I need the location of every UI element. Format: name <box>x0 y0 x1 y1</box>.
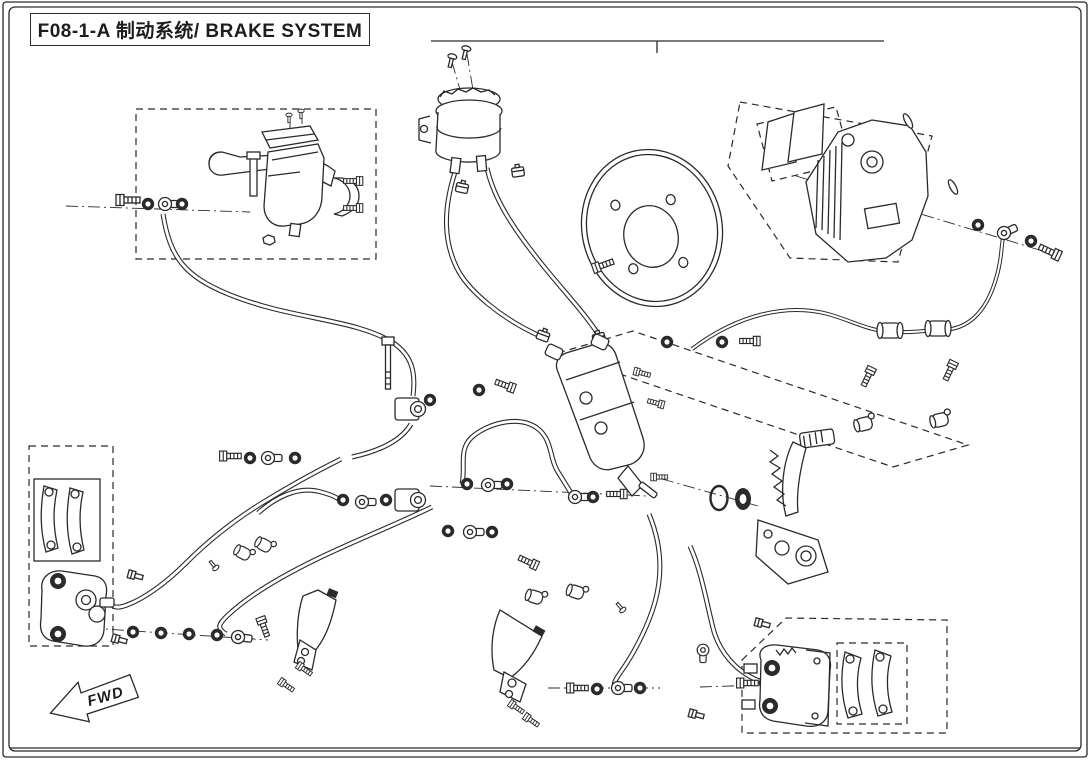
bolt-21 <box>859 365 876 387</box>
rear-banjo-fitting <box>972 219 1063 261</box>
bleeder-33 <box>127 570 144 582</box>
page-frame <box>3 2 1087 757</box>
hose-clamps-left <box>207 534 277 572</box>
clamp-22 <box>565 581 590 601</box>
caliper-pin-17 <box>947 179 960 196</box>
lever-pivot-bolt <box>250 158 257 196</box>
banjo-bolt-4 <box>1037 242 1062 261</box>
rear-right-caliper <box>742 645 892 726</box>
hose-20-front <box>112 459 341 607</box>
clamp-22 <box>524 586 549 606</box>
bolt-21 <box>522 712 540 728</box>
bleeder-33 <box>111 634 128 646</box>
reservoir-screw <box>445 53 457 68</box>
bleeder-33 <box>754 618 771 630</box>
pipe-clamps-right <box>852 359 958 432</box>
clamp-22 <box>253 534 277 556</box>
bolt-21 <box>941 359 958 381</box>
brake-pedal <box>651 429 835 584</box>
fitting-36 <box>697 644 709 662</box>
front-master-cylinder <box>209 109 363 245</box>
hose-clamp-9 <box>511 164 525 178</box>
parts-diagram-page: FWD F08-1-A 制动系统/ BRAKE SYSTEM <box>0 0 1090 760</box>
diagram-canvas: FWD <box>0 0 1090 760</box>
top-index-bracket <box>431 41 884 53</box>
bleeder-33 <box>688 709 705 721</box>
brake-pad <box>788 104 824 162</box>
hose-10 <box>446 172 540 336</box>
title-block: F08-1-A 制动系统/ BRAKE SYSTEM <box>30 13 370 46</box>
fwd-arrow: FWD <box>44 667 141 731</box>
clamp-22 <box>232 542 256 564</box>
front-left-caliper <box>41 486 115 646</box>
clamp-22 <box>852 412 877 432</box>
hose-clamp-9 <box>455 179 469 193</box>
hose-guard-39 <box>492 610 545 728</box>
pipe-sleeves <box>877 321 951 339</box>
brake-disc <box>565 134 739 321</box>
bottom-middle-fasteners <box>524 581 800 721</box>
left-caliper-fasteners <box>127 616 272 646</box>
clamp-32-lower <box>395 489 426 511</box>
washer-27 <box>711 486 728 510</box>
screw-37 <box>614 601 627 614</box>
lever-nut <box>263 235 275 245</box>
page-title: F08-1-A 制动系统/ BRAKE SYSTEM <box>38 16 363 43</box>
hose-clamp-9 <box>536 327 551 342</box>
hose-guard-38 <box>277 589 337 694</box>
screw-37 <box>207 559 220 572</box>
bolt-31 <box>382 337 394 389</box>
clamp-32-upper <box>395 398 426 420</box>
reservoir-screw <box>459 45 471 60</box>
brake-fluid-reservoir <box>419 45 502 174</box>
rear-brake-caliper <box>762 104 959 262</box>
clamp-22 <box>928 408 953 428</box>
bolt-29 <box>633 367 651 379</box>
bolt-21 <box>507 699 525 715</box>
bolt-21 <box>277 677 295 693</box>
bolt-29 <box>647 397 665 409</box>
